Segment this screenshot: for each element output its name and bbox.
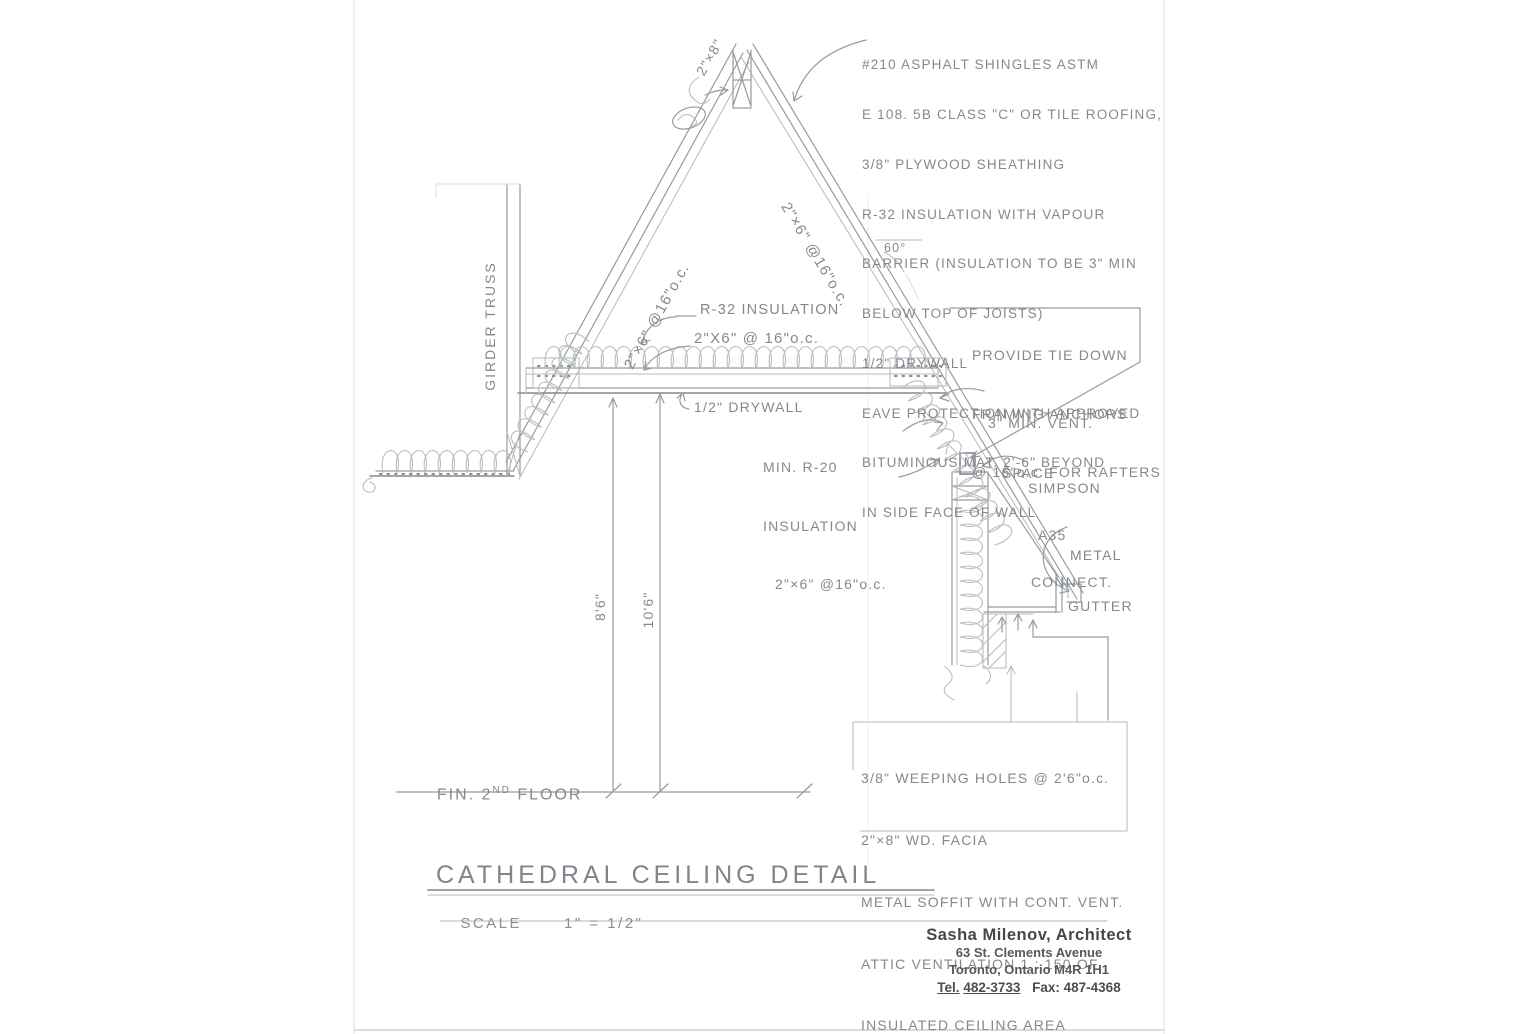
architect-phone: Tel. 482-3733 Fax: 487-4368	[915, 980, 1143, 995]
drawing-title: CATHEDRAL CEILING DETAIL	[436, 861, 880, 890]
scale-value: 1" = 1/2"	[564, 915, 643, 932]
note-line: INSULATED CEILING AREA	[861, 1015, 1123, 1034]
note-line: PROVIDE TIE DOWN	[972, 346, 1161, 366]
architect-stamp: Sasha Milenov, Architect 63 St. Clements…	[915, 926, 1143, 995]
label-line: GUTTER	[1068, 598, 1133, 615]
floor-label: FIN. 2ND FLOOR	[424, 767, 582, 804]
label-line: 2"×6" @16"o.c.	[775, 575, 887, 595]
note-line: METAL SOFFIT WITH CONT. VENT.	[861, 892, 1123, 913]
ceiling-joist-label: 2"X6" @ 16"o.c.	[694, 330, 819, 347]
note-line: 3/8" WEEPING HOLES @ 2'6"o.c.	[861, 768, 1123, 789]
drywall-label: 1/2" DRYWALL	[694, 399, 804, 415]
ceiling-insulation-label: R-32 INSULATION	[700, 302, 839, 318]
roof-angle-label: 60°	[884, 241, 907, 255]
metal-gutter-label: METAL GUTTER	[1070, 513, 1133, 632]
scale-label: SCALE	[460, 915, 522, 932]
architect-address2: Toronto, Ontario M4R 1H1	[915, 962, 1143, 979]
label-line: INSULATION	[763, 517, 887, 537]
architect-address1: 63 St. Clements Avenue	[915, 945, 1143, 962]
note-line: #210 ASPHALT SHINGLES ASTM	[862, 57, 1162, 74]
dim-label-ceiling-height: 8'6"	[592, 577, 608, 637]
floor-label-text2: FLOOR	[511, 786, 583, 803]
label-line: METAL	[1070, 547, 1133, 564]
tel-label: Tel.	[937, 980, 959, 995]
note-line: 2"×8" WD. FACIA	[861, 830, 1123, 851]
tel-number: 482-3733	[963, 980, 1020, 995]
note-line: E 108. 5B CLASS "C" OR TILE ROOFING,	[862, 107, 1162, 124]
label-line: MIN. R-20	[763, 458, 887, 478]
floor-label-sup: ND	[492, 785, 510, 796]
dim-label-peak-height: 10'6"	[640, 580, 656, 640]
fax-number: Fax: 487-4368	[1032, 980, 1121, 995]
scale-note: SCALE1" = 1/2"	[447, 898, 644, 932]
girder-truss-label: GIRDER TRUSS	[482, 236, 498, 416]
note-line: 3/8" PLYWOOD SHEATHING	[862, 157, 1162, 174]
floor-label-text: FIN. 2	[437, 786, 493, 803]
eave-insulation-label: MIN. R-20 INSULATION 2"×6" @16"o.c.	[763, 419, 887, 614]
note-line: R-32 INSULATION WITH VAPOUR	[862, 207, 1162, 224]
drawing-sheet: #210 ASPHALT SHINGLES ASTM E 108. 5B CLA…	[0, 0, 1536, 1034]
note-line: BARRIER (INSULATION TO BE 3" MIN	[862, 256, 1162, 273]
architect-name: Sasha Milenov, Architect	[915, 926, 1143, 945]
label-line: 3" MIN. VENT.	[988, 415, 1093, 432]
label-line: SIMPSON	[1028, 481, 1112, 497]
